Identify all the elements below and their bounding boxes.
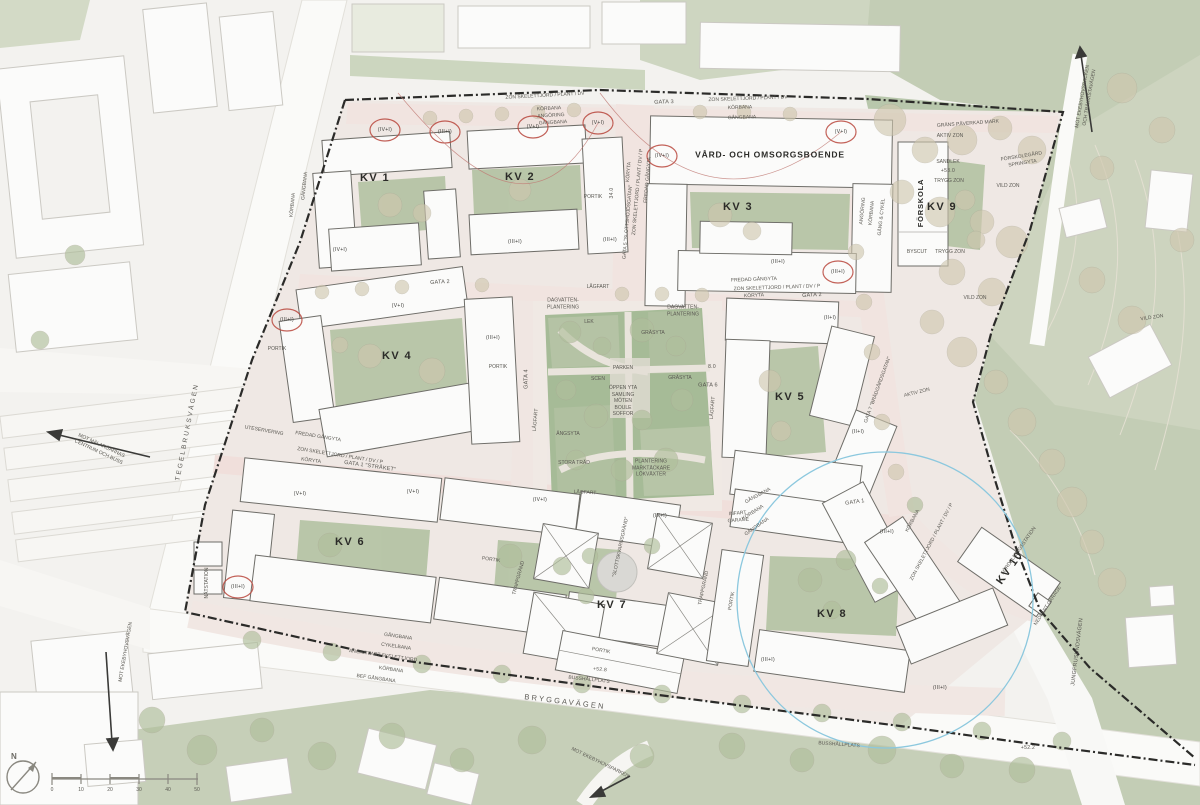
anno-lagfart-s: LÅGFART [573,489,596,497]
park-stora-trad: STORA TRÄD [558,460,590,467]
park-lek: LEK [584,319,593,326]
kv5-label: KV 5 [775,390,805,404]
anno-portik-kv2: PORTIK [584,194,603,201]
substation-label: NÄTSTATION [204,568,211,599]
park-dagvatten-west: DAGVATTEN-PLANTERING [541,298,585,311]
anno-gangbana-ne: GÅNGBANA [728,114,757,121]
park-plantering: PLANTERING MARKTÄCKARE LÖKVÄXTER [627,458,675,478]
scale-tick-label: 20 [107,787,113,794]
park-open-area: ÖPPEN YTA SAMLING MÖTEN BOULE SOFFOR [605,385,641,418]
anno-portik-kv4e: PORTIK [489,364,508,371]
floor-tag: (III+I) [933,685,947,692]
floor-tag: (IV+I) [333,247,347,254]
floor-tag: (III+I) [761,657,775,664]
zone-vild-north: VILD ZON [996,183,1019,190]
anno-lagfart-n: LÅGFART [587,284,610,291]
preschool-label: FÖRSKOLA [916,179,926,227]
scale-tick-label: 40 [165,787,171,794]
floor-tag: (III+I) [508,239,522,246]
park-scen: SCEN [591,376,605,383]
floor-tag: (IV+I) [533,497,547,504]
floor-tag: (III+I) [831,269,845,276]
floor-tag: (III+I) [438,129,452,136]
floor-tag: (V+I) [835,129,847,136]
floor-tag: (III+I) [231,584,245,591]
spot-level: +52.2 [1021,745,1035,752]
park-parken: PARKEN [613,365,633,372]
floor-tag: (V+I) [407,489,419,496]
park-grasyta-north: GRÄSYTA [641,330,665,337]
floor-tag: (II+I) [852,429,864,436]
park-dagvatten-east: DAGVATTEN-PLANTERING [661,305,705,318]
care-home-label: VÅRD- OCH OMSORGSBOENDE [695,149,845,160]
dim-label: 8.0 [708,364,716,371]
dim-label: 34.0 [609,188,616,199]
street-gata2-west: GATA 2 [430,279,450,287]
scale-tick-label: 10 [78,787,84,794]
scale-tick-label: 30 [136,787,142,794]
anno-portik-kv4w: PORTIK [268,346,287,353]
floor-tag: (V+I) [527,124,539,131]
park-grasyta-east: GRÄSYTA [668,375,692,382]
floor-tag: (V+I) [294,491,306,498]
floor-tag: (IV+I) [655,153,669,160]
zone-vild-mid: VILD ZON [963,295,986,302]
street-gata3: GATA 3 [654,99,674,107]
spot-level: +53.0 [941,168,955,175]
floor-tag: (III+I) [603,237,617,244]
kv8-label: KV 8 [817,607,847,621]
zone-sandlek: SANDLEK [936,159,959,166]
street-gata6: GATA 6 [698,382,718,389]
floor-tag: (III+I) [653,513,667,520]
kv6-label: KV 6 [335,535,365,549]
compass-north-label: N [11,752,17,762]
kv4-label: KV 4 [382,349,412,363]
scale-tick-label: 0 [51,787,54,794]
floor-tag: (II+I) [824,315,836,322]
floor-tag: (IV+I) [378,127,392,134]
street-gata2-east: GATA 2 [802,292,822,300]
floor-tag: (III+I) [280,317,294,324]
street-gata4: GATA 4 [523,369,530,389]
zone-trygg-upper: TRYGG ZON [934,178,964,185]
floor-tag: (III+I) [771,259,785,266]
anno-koryta-ne: KÖRYTA [744,292,764,300]
preschool-annex-label: BYSCUT [907,249,927,256]
scale-tick-label: 50 [194,787,200,794]
floor-tag: (V+I) [392,303,404,310]
kv2-label: KV 2 [505,170,535,184]
site-plan: KV 1 KV 2 KV 3 KV 4 KV 5 KV 6 KV 7 KV 8 … [0,0,1200,805]
kv3-label: KV 3 [723,200,753,214]
floor-tag: (III+I) [486,335,500,342]
floor-tag: (V+I) [592,120,604,127]
spot-level: +52.8 [593,666,608,674]
zone-trygg-lower: TRYGG ZON [935,249,965,256]
anno-korbana-ne: KÖRBANA [728,104,753,111]
kv1-label: KV 1 [360,171,390,185]
floor-tag: (III+I) [880,529,894,536]
kv9-label: KV 9 [927,200,957,214]
zone-aktiv-north: AKTIV ZON [937,133,963,140]
park-angsyta: ÄNGSYTA [556,431,580,438]
kv7-label: KV 7 [597,598,627,612]
